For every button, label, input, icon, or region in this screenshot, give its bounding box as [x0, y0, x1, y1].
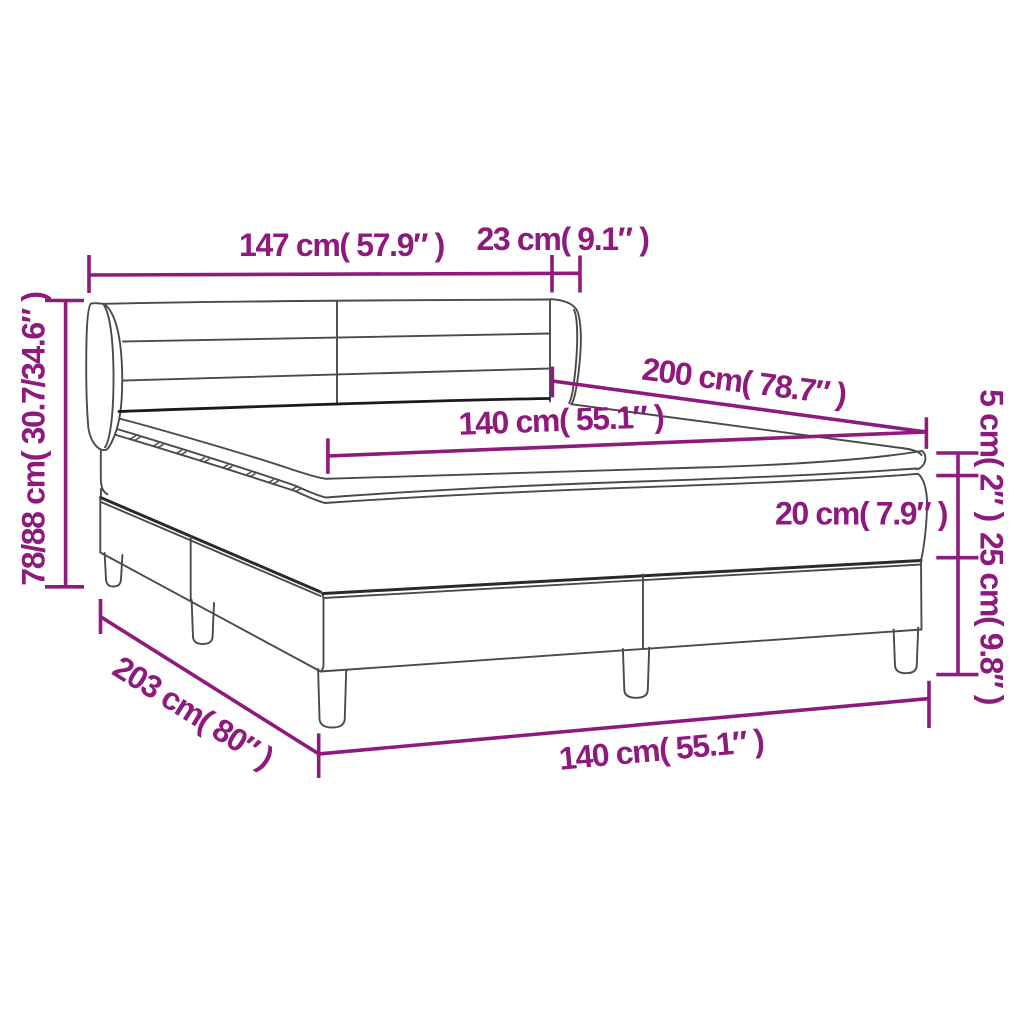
svg-text:5 cm( 2″ ): 5 cm( 2″ )	[974, 389, 1010, 521]
svg-text:20 cm( 7.9″ ): 20 cm( 7.9″ )	[775, 495, 948, 531]
svg-text:23 cm( 9.1″ ): 23 cm( 9.1″ )	[476, 221, 649, 257]
svg-text:147 cm( 57.9″ ): 147 cm( 57.9″ )	[239, 227, 445, 263]
svg-text:25 cm( 9.8″ ): 25 cm( 9.8″ )	[974, 532, 1010, 705]
svg-text:78/88 cm( 30.7/34.6″ ): 78/88 cm( 30.7/34.6″ )	[16, 292, 52, 586]
